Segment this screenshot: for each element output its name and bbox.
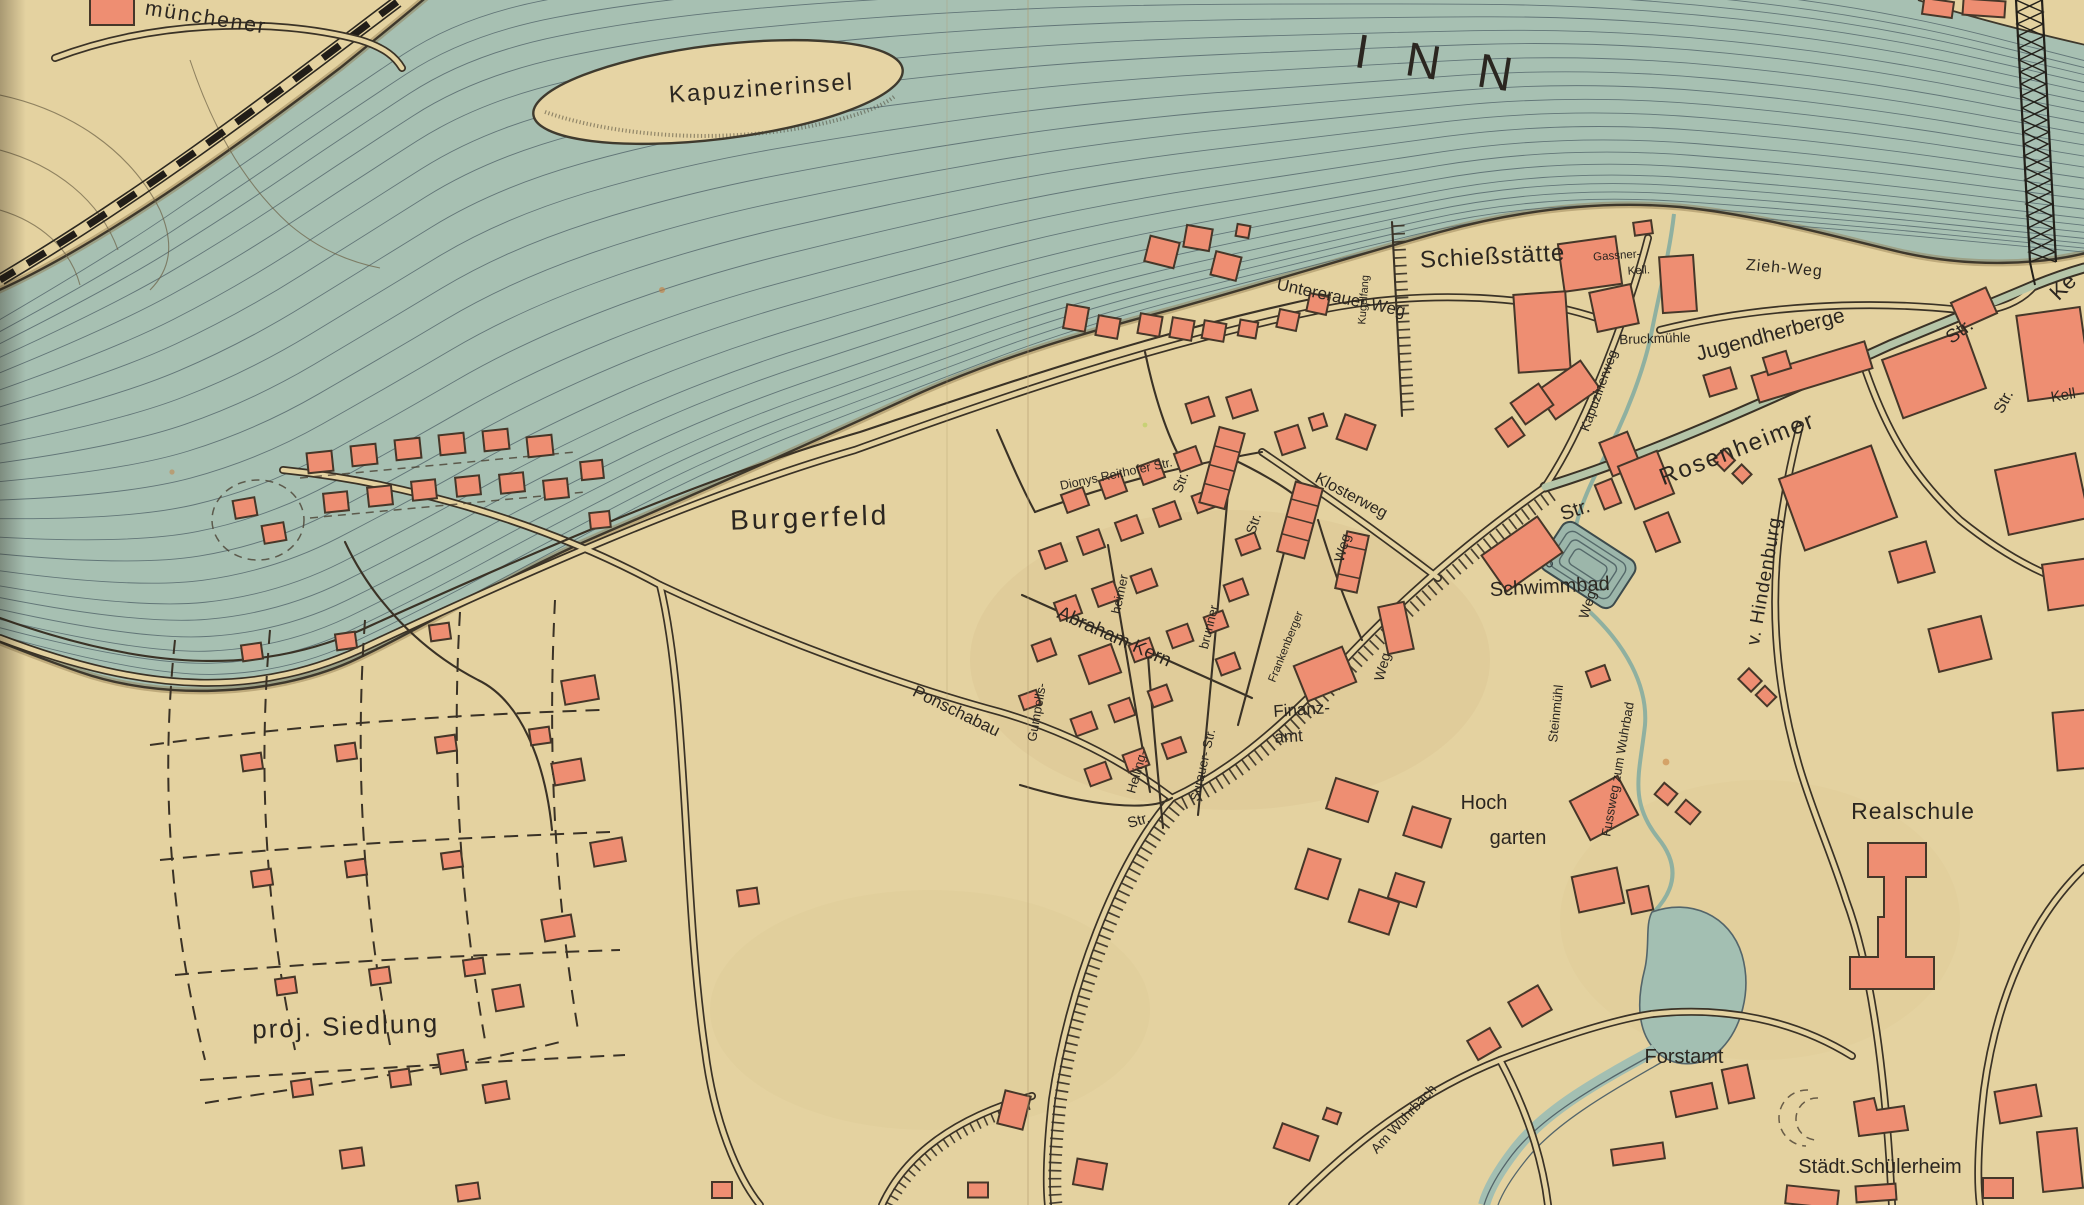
label-gassner-kell-2: Kell. — [1627, 264, 1650, 278]
building — [483, 429, 510, 452]
building — [1722, 1065, 1755, 1104]
building — [1073, 1159, 1107, 1190]
building — [90, 0, 134, 25]
label-hochgarten-2: garten — [1490, 827, 1547, 849]
building — [527, 435, 554, 458]
building — [351, 444, 378, 467]
building — [483, 1081, 510, 1103]
building — [1137, 313, 1162, 337]
building — [968, 1183, 988, 1198]
building — [1169, 317, 1194, 341]
building — [1513, 291, 1570, 372]
building — [429, 623, 451, 642]
building — [441, 851, 463, 870]
building — [262, 522, 287, 544]
building — [251, 869, 273, 888]
building — [561, 675, 599, 705]
building — [1983, 1178, 2013, 1198]
building — [389, 1069, 411, 1088]
building — [1922, 0, 1954, 18]
label-finanzamt-1: Finanz- — [1273, 698, 1331, 721]
building — [1183, 225, 1212, 251]
building — [233, 497, 258, 519]
building — [335, 632, 357, 651]
building — [241, 643, 263, 662]
building — [492, 985, 523, 1012]
label-burgerfeld: Burgerfeld — [730, 499, 890, 536]
building — [1202, 320, 1227, 342]
building — [435, 735, 457, 754]
building — [2037, 1128, 2083, 1192]
building — [241, 753, 263, 772]
building — [2042, 558, 2084, 611]
building — [1558, 236, 1622, 292]
building — [463, 958, 485, 977]
building — [1063, 304, 1089, 331]
building — [275, 977, 297, 996]
building — [411, 479, 437, 500]
label-forstamt: Forstamt — [1645, 1046, 1724, 1068]
building — [712, 1182, 732, 1198]
building — [737, 888, 759, 907]
building — [1962, 0, 2005, 17]
building — [1210, 251, 1241, 281]
building — [2053, 709, 2084, 770]
building — [1238, 320, 1259, 339]
building — [323, 491, 349, 512]
building — [335, 743, 357, 762]
building — [395, 438, 422, 461]
building — [1633, 220, 1653, 235]
building — [529, 727, 551, 746]
label-realschule: Realschule — [1851, 798, 1975, 824]
building — [437, 1050, 466, 1074]
building — [345, 859, 367, 878]
building — [367, 485, 393, 506]
building — [541, 915, 574, 942]
building — [1276, 309, 1299, 331]
building — [589, 511, 611, 529]
building — [340, 1148, 364, 1169]
map-canvas: INN Kapuzinerinsel münchener Burgerfeld … — [0, 0, 2084, 1205]
building — [1995, 1085, 2042, 1124]
label-bruckmuehle: Bruckmühle — [1619, 330, 1691, 347]
building — [580, 460, 604, 480]
label-hochgarten-1: Hoch — [1461, 792, 1508, 814]
building — [1095, 315, 1120, 339]
historical-map: INN Kapuzinerinsel münchener Burgerfeld … — [0, 0, 2084, 1205]
building — [439, 433, 466, 456]
label-finanzamt-2: amt — [1274, 726, 1304, 747]
building — [1236, 224, 1251, 238]
building — [307, 451, 334, 474]
building — [1659, 255, 1697, 313]
label-schuelerheim: Städt.Schülerheim — [1798, 1156, 1961, 1178]
building — [499, 472, 525, 493]
building — [455, 475, 481, 496]
building — [1855, 1184, 1896, 1203]
building — [590, 837, 626, 866]
building — [456, 1183, 480, 1202]
building — [1627, 886, 1654, 914]
building — [1589, 284, 1638, 332]
building — [369, 967, 391, 986]
building — [291, 1079, 313, 1098]
building — [543, 478, 569, 499]
building — [551, 759, 584, 786]
